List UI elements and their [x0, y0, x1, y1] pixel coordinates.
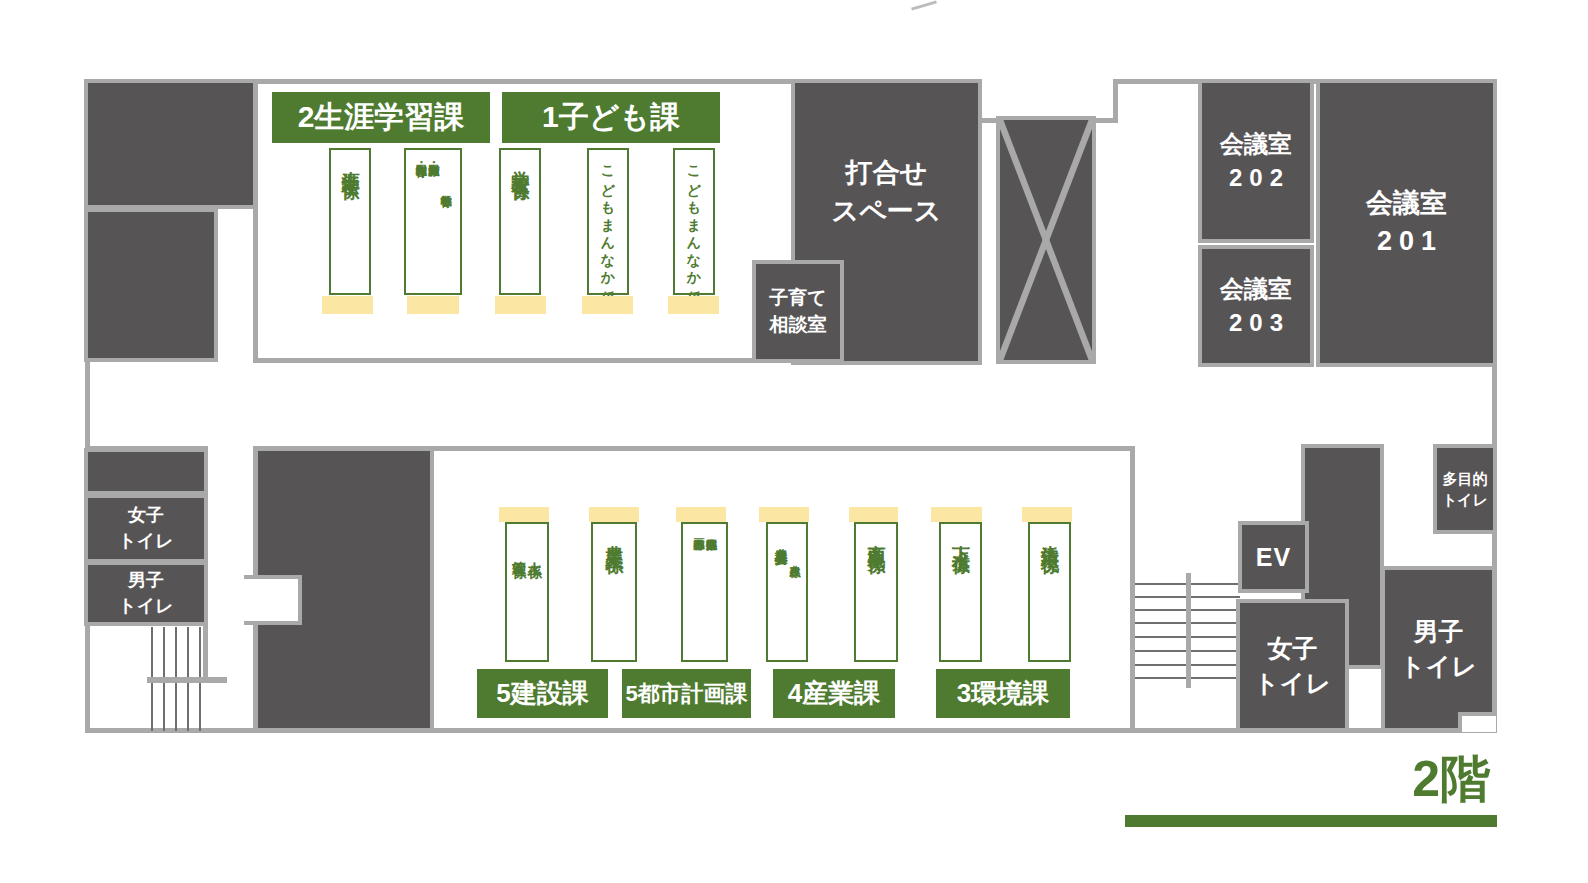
- desk-base: [668, 296, 719, 314]
- meeting-space-label: 打合せ スペース: [832, 155, 942, 231]
- dept-header-kankyo: 3環境課: [936, 669, 1070, 718]
- floor-title: 2階: [1300, 748, 1490, 810]
- desk-base: [931, 507, 982, 522]
- room-unlabeled-top-left-1: [84, 79, 264, 209]
- desk-label: 生涯学習係: [341, 156, 360, 171]
- elevator-label: EV: [1256, 543, 1291, 572]
- floor-title-underline: [1125, 815, 1497, 827]
- desk-shogai-gakushu-kakari: 生涯学習係: [329, 148, 371, 295]
- room-conference-202: 会議室 202: [1198, 79, 1314, 243]
- stair-landing-bar: [147, 677, 227, 683]
- desk-jinken-dowa: 学校教育係 人権・同和対策係 人権・同和教育係: [404, 148, 462, 295]
- desk-base: [759, 507, 809, 522]
- desk-label: 商工観光係: [867, 530, 886, 545]
- wall-segment: [1113, 79, 1118, 123]
- wall-notch: [244, 575, 302, 625]
- desk-kodomo-mannaka-2: こどもまんなか係: [673, 148, 715, 295]
- room-women-toilet-left: 女子 トイレ: [84, 494, 208, 563]
- men-toilet-left-label: 男子 トイレ: [118, 568, 173, 618]
- desk-label: こどもまんなか係: [601, 156, 616, 280]
- conference-201-label: 会議室 201: [1366, 185, 1447, 261]
- desk-base: [407, 296, 459, 314]
- dept-header-kodomo: 1子ども課: [502, 92, 720, 143]
- desk-shoko-kanko: 商工観光係: [854, 522, 898, 662]
- desk-base: [322, 296, 373, 314]
- x-brace-icon: [1000, 120, 1092, 360]
- room-kosodate-soudan: 子育て 相談室: [752, 260, 844, 363]
- desk-label: こどもまんなか係: [687, 156, 702, 280]
- room-women-toilet-right: 女子 トイレ: [1236, 599, 1349, 732]
- dept-header-shogaigakushu: 2生涯学習課: [272, 92, 490, 143]
- desk-label: 学校教育係: [511, 156, 530, 171]
- multipurpose-toilet-label: 多目的 トイレ: [1442, 468, 1488, 510]
- room-men-toilet-left: 男子 トイレ: [84, 561, 208, 626]
- desk-base: [499, 507, 549, 522]
- desk-base: [582, 296, 633, 314]
- desk-kodomo-mannaka-1: こどもまんなか係: [587, 148, 629, 295]
- desk-label: 農政係: [789, 556, 801, 559]
- desk-label: 生活環境係: [1040, 530, 1059, 545]
- wall-notch: [1458, 712, 1496, 732]
- desk-label: 農業土木係: [605, 530, 624, 545]
- desk-kokken-toshikeikaku: 国県事業推進係 都市計画係: [681, 522, 728, 662]
- dept-header-toshikeikaku: 5都市計画課: [622, 669, 751, 718]
- desk-base: [1022, 507, 1072, 522]
- desk-gakko-kyoiku: 学校教育係: [499, 148, 541, 295]
- women-toilet-left-label: 女子 トイレ: [118, 503, 173, 553]
- room-unlabeled-top-left-2: [84, 208, 218, 362]
- desk-label: 上下水道係: [951, 530, 970, 545]
- room-stairwell-shaft: [996, 116, 1096, 364]
- desk-nousei-nogyoiinkai: 農政係 農業委員会: [766, 522, 808, 662]
- desk-label: 管理係: [512, 550, 527, 555]
- desk-label: 農業委員会: [774, 538, 788, 543]
- conference-202-label: 会議室 202: [1220, 127, 1292, 194]
- desk-base: [676, 507, 726, 522]
- room-unlabeled-bottom-left: [84, 448, 208, 495]
- room-conference-201: 会議室 201: [1316, 79, 1497, 367]
- men-toilet-right-label: 男子 トイレ: [1400, 614, 1477, 684]
- desk-jogesuido: 上下水道係: [939, 522, 982, 662]
- dept-header-sangyo: 4産業課: [773, 669, 895, 718]
- wall-segment: [1130, 446, 1135, 733]
- room-men-toilet-right: 男子 トイレ: [1381, 566, 1496, 732]
- desk-nogyo-doboku: 農業土木係: [591, 522, 637, 662]
- desk-base: [495, 296, 546, 314]
- desk-seikatsu-kankyo: 生活環境係: [1028, 522, 1071, 662]
- desk-base: [589, 507, 639, 522]
- desk-base: [849, 507, 898, 522]
- room-elevator: EV: [1238, 521, 1309, 593]
- desk-doboku-kanri: 土木係 管理係: [505, 522, 549, 662]
- conference-203-label: 会議室 203: [1220, 272, 1292, 339]
- kosodate-label: 子育て 相談室: [769, 285, 826, 338]
- desk-label: 土木係: [528, 550, 543, 555]
- stray-mark: [911, 0, 937, 10]
- floor-map-2f: 打合せ スペース 子育て 相談室 会議室 202 会議室 203 会議室 201: [0, 0, 1588, 883]
- room-multipurpose-toilet: 多目的 トイレ: [1433, 444, 1497, 534]
- stair-landing-bar: [1186, 573, 1191, 688]
- women-toilet-right-label: 女子 トイレ: [1254, 631, 1331, 701]
- dept-header-kensetsu: 5建設課: [477, 669, 608, 718]
- room-conference-203: 会議室 203: [1198, 245, 1314, 367]
